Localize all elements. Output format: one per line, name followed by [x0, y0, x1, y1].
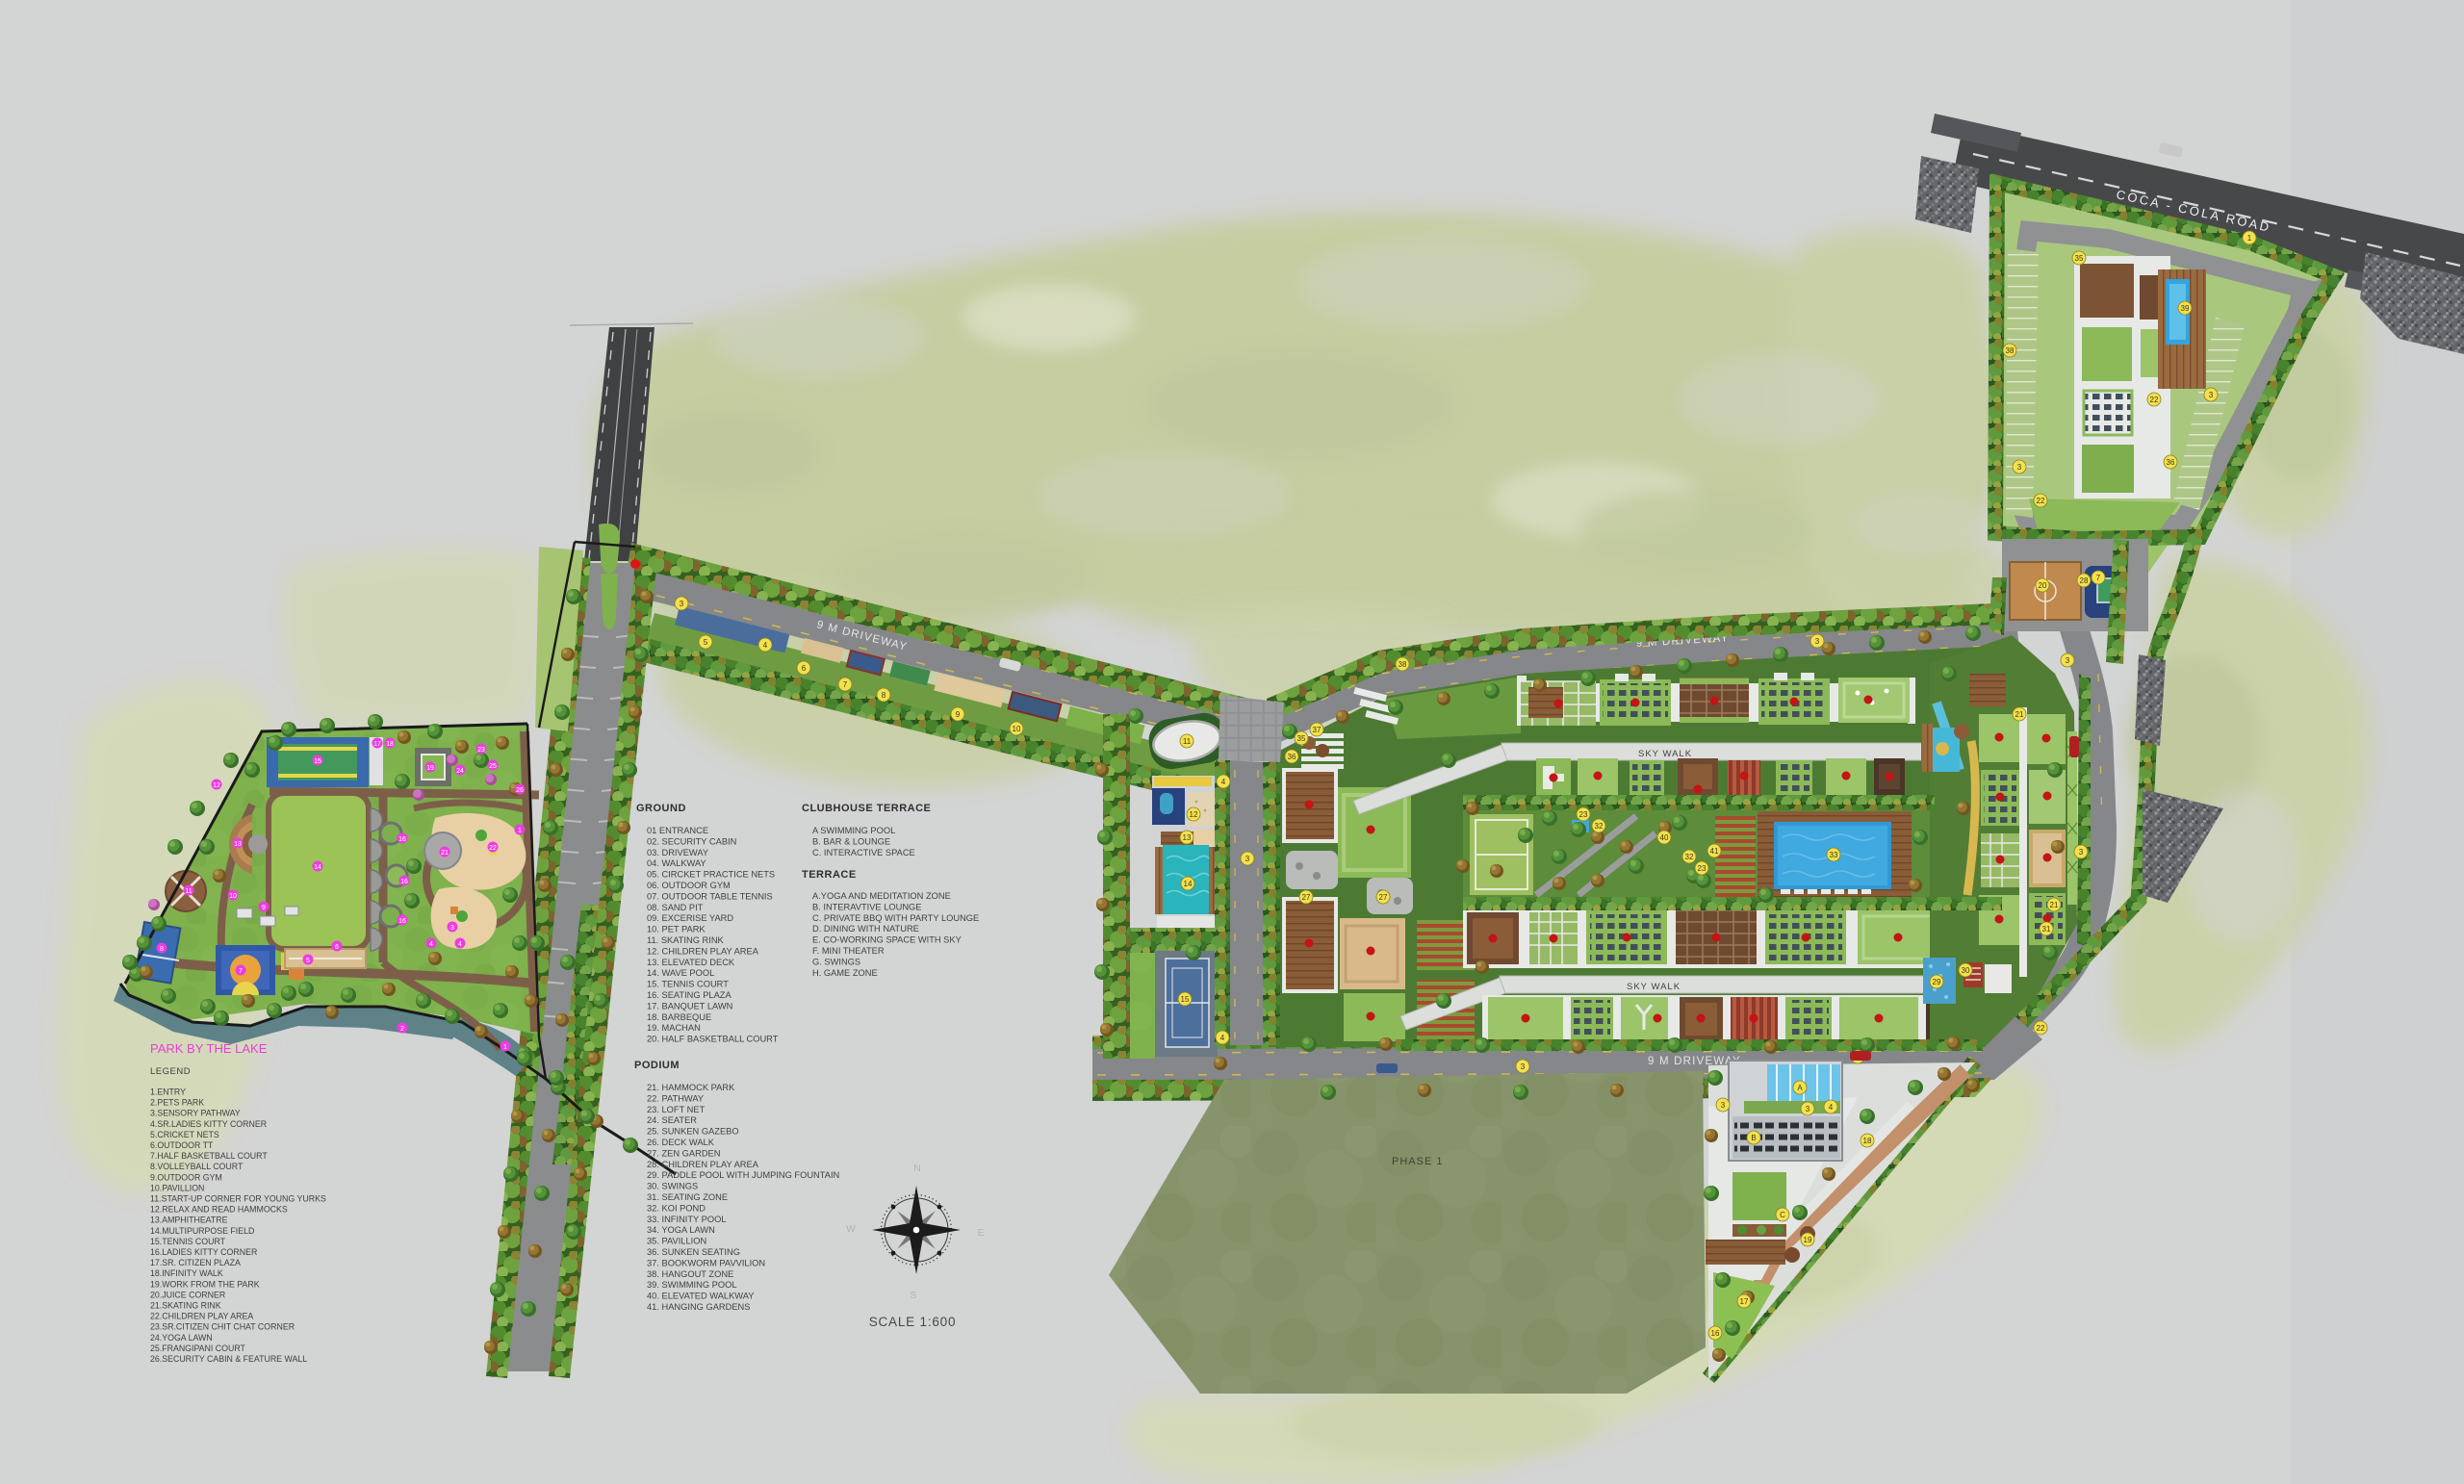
svg-text:PARK BY THE LAKE: PARK BY THE LAKE [150, 1041, 268, 1056]
svg-text:11: 11 [1183, 737, 1192, 746]
svg-text:3: 3 [2209, 391, 2214, 399]
svg-text:17.SR. CITIZEN PLAZA: 17.SR. CITIZEN PLAZA [150, 1258, 241, 1267]
svg-text:16: 16 [400, 879, 408, 885]
svg-text:31: 31 [2042, 925, 2051, 934]
svg-text:20: 20 [2039, 581, 2047, 590]
svg-text:18: 18 [386, 741, 394, 748]
svg-text:4.SR.LADIES KITTY CORNER: 4.SR.LADIES KITTY CORNER [150, 1119, 267, 1129]
svg-text:29. PADDLE POOL WITH JUMPING F: 29. PADDLE POOL WITH JUMPING FOUNTAIN [647, 1170, 839, 1180]
svg-text:10. PET PARK: 10. PET PARK [647, 925, 706, 934]
svg-text:SKY WALK: SKY WALK [1627, 982, 1681, 992]
svg-text:3: 3 [1245, 855, 1250, 863]
svg-text:19: 19 [426, 765, 434, 772]
svg-text:38. HANGOUT ZONE: 38. HANGOUT ZONE [647, 1269, 733, 1279]
svg-text:17: 17 [373, 741, 381, 748]
svg-text:8: 8 [160, 946, 164, 953]
svg-text:A.YOGA AND MEDITATION ZONE: A.YOGA AND MEDITATION ZONE [812, 891, 951, 901]
svg-text:28. CHILDREN PLAY AREA: 28. CHILDREN PLAY AREA [647, 1160, 759, 1169]
svg-text:11. SKATING RINK: 11. SKATING RINK [647, 935, 725, 945]
svg-text:15: 15 [314, 758, 321, 765]
svg-text:B. BAR & LOUNGE: B. BAR & LOUNGE [812, 836, 890, 846]
svg-text:8.VOLLEYBALL COURT: 8.VOLLEYBALL COURT [150, 1162, 244, 1171]
svg-text:W: W [846, 1223, 856, 1235]
svg-text:19: 19 [1804, 1236, 1812, 1244]
svg-text:16.LADIES KITTY CORNER: 16.LADIES KITTY CORNER [150, 1247, 257, 1257]
svg-text:23: 23 [477, 747, 485, 754]
svg-text:34. YOGA LAWN: 34. YOGA LAWN [647, 1225, 715, 1235]
svg-text:13. ELEVATED DECK: 13. ELEVATED DECK [647, 958, 735, 967]
svg-text:23.SR.CITIZEN CHIT CHAT CORNER: 23.SR.CITIZEN CHIT CHAT CORNER [150, 1322, 295, 1332]
svg-text:7: 7 [239, 968, 243, 975]
svg-text:24. SEATER: 24. SEATER [647, 1115, 697, 1125]
svg-text:21: 21 [2015, 710, 2024, 719]
svg-text:38: 38 [1399, 660, 1407, 669]
svg-text:7: 7 [2096, 574, 2101, 582]
svg-text:B. INTERAVTIVE LOUNGE: B. INTERAVTIVE LOUNGE [812, 902, 921, 911]
svg-text:35: 35 [1297, 734, 1306, 743]
svg-text:04. WALKWAY: 04. WALKWAY [647, 858, 706, 868]
svg-text:22: 22 [489, 845, 497, 852]
svg-text:15. TENNIS COURT: 15. TENNIS COURT [647, 980, 729, 989]
svg-text:9: 9 [262, 905, 266, 911]
svg-text:3: 3 [680, 600, 684, 608]
svg-text:E: E [977, 1227, 984, 1239]
svg-text:B: B [1751, 1134, 1756, 1142]
svg-text:27: 27 [1379, 893, 1388, 902]
svg-text:TERRACE: TERRACE [802, 869, 857, 881]
svg-text:21. HAMMOCK PARK: 21. HAMMOCK PARK [647, 1083, 735, 1092]
svg-text:20. HALF BASKETBALL COURT: 20. HALF BASKETBALL COURT [647, 1035, 779, 1044]
svg-text:41: 41 [1710, 847, 1719, 856]
svg-text:SKY WALK: SKY WALK [1638, 749, 1692, 759]
svg-text:3: 3 [2079, 848, 2084, 857]
svg-text:22: 22 [2037, 1024, 2045, 1033]
svg-text:14: 14 [314, 864, 321, 871]
svg-text:6: 6 [335, 944, 339, 951]
svg-text:2.PETS PARK: 2.PETS PARK [150, 1098, 204, 1108]
svg-text:1: 1 [503, 1044, 507, 1051]
svg-text:17. BANQUET LAWN: 17. BANQUET LAWN [647, 1001, 732, 1011]
svg-text:07. OUTDOOR TABLE TENNIS: 07. OUTDOOR TABLE TENNIS [647, 891, 773, 901]
svg-text:A SWIMMING POOL: A SWIMMING POOL [812, 826, 895, 835]
svg-text:08. SAND PIT: 08. SAND PIT [647, 903, 704, 912]
svg-text:28: 28 [2080, 576, 2089, 585]
svg-text:29: 29 [1933, 978, 1941, 986]
svg-text:C: C [1780, 1211, 1785, 1219]
svg-text:LEGEND: LEGEND [150, 1066, 191, 1077]
svg-text:3: 3 [1806, 1105, 1810, 1113]
svg-text:3: 3 [1721, 1101, 1726, 1110]
svg-text:03. DRIVEWAY: 03. DRIVEWAY [647, 848, 708, 857]
svg-text:26: 26 [516, 787, 524, 794]
svg-text:N: N [913, 1163, 921, 1174]
svg-text:33: 33 [1830, 851, 1838, 859]
svg-text:2: 2 [400, 1026, 404, 1033]
svg-text:36: 36 [2167, 458, 2175, 467]
svg-text:H. GAME ZONE: H. GAME ZONE [812, 968, 878, 978]
svg-text:9.OUTDOOR GYM: 9.OUTDOOR GYM [150, 1172, 222, 1182]
svg-text:15.TENNIS COURT: 15.TENNIS COURT [150, 1237, 226, 1246]
svg-text:4: 4 [458, 941, 462, 948]
svg-text:31. SEATING ZONE: 31. SEATING ZONE [647, 1192, 728, 1202]
svg-text:35. PAVILLION: 35. PAVILLION [647, 1237, 706, 1246]
svg-text:PODIUM: PODIUM [634, 1060, 680, 1071]
svg-text:26. DECK WALK: 26. DECK WALK [647, 1138, 715, 1147]
svg-text:36. SUNKEN SEATING: 36. SUNKEN SEATING [647, 1247, 740, 1257]
svg-text:C. PRIVATE BBQ WITH PARTY LOU: C. PRIVATE BBQ WITH PARTY LOUNGE [812, 913, 979, 923]
svg-text:D. DINING WITH NATURE: D. DINING WITH NATURE [812, 924, 919, 934]
svg-text:32. KOI POND: 32. KOI POND [647, 1203, 706, 1213]
svg-text:15: 15 [1181, 995, 1190, 1004]
svg-text:11.START-UP CORNER FOR YOUNG Y: 11.START-UP CORNER FOR YOUNG YURKS [150, 1194, 326, 1204]
svg-text:30. SWINGS: 30. SWINGS [647, 1182, 698, 1191]
svg-text:27: 27 [1302, 893, 1311, 902]
svg-text:4: 4 [1221, 778, 1226, 786]
svg-text:37: 37 [1313, 726, 1322, 734]
svg-text:25. SUNKEN GAZEBO: 25. SUNKEN GAZEBO [647, 1127, 739, 1137]
svg-text:33. INFINITY POOL: 33. INFINITY POOL [647, 1215, 727, 1224]
svg-text:18.INFINITY WALK: 18.INFINITY WALK [150, 1268, 223, 1278]
svg-text:E. CO-WORKING SPACE WITH SKY: E. CO-WORKING SPACE WITH SKY [812, 935, 962, 945]
svg-text:13: 13 [234, 841, 242, 848]
svg-text:11: 11 [185, 888, 192, 895]
svg-text:32: 32 [1595, 822, 1604, 831]
svg-text:5: 5 [306, 958, 310, 964]
svg-text:18: 18 [1863, 1137, 1872, 1145]
svg-text:16: 16 [398, 918, 406, 925]
svg-text:F. MINI THEATER: F. MINI THEATER [812, 946, 885, 956]
svg-text:4: 4 [429, 941, 433, 948]
svg-text:26.SECURITY CABIN & FEATURE WA: 26.SECURITY CABIN & FEATURE WALL [150, 1354, 307, 1364]
svg-text:16: 16 [398, 836, 406, 843]
svg-text:24: 24 [456, 768, 464, 775]
svg-text:3: 3 [1521, 1062, 1526, 1071]
svg-text:38: 38 [2006, 346, 2015, 355]
svg-text:17: 17 [1740, 1297, 1749, 1306]
svg-text:40. ELEVATED WALKWAY: 40. ELEVATED WALKWAY [647, 1292, 754, 1301]
svg-text:22: 22 [2150, 396, 2159, 404]
svg-text:35: 35 [2075, 254, 2084, 263]
svg-text:19. MACHAN: 19. MACHAN [647, 1023, 701, 1033]
svg-text:3: 3 [450, 925, 454, 932]
svg-text:7: 7 [843, 680, 848, 689]
svg-text:39. SWIMMING POOL: 39. SWIMMING POOL [647, 1280, 737, 1290]
svg-text:1: 1 [518, 828, 522, 834]
svg-text:14. WAVE POOL: 14. WAVE POOL [647, 968, 714, 978]
svg-text:22.CHILDREN PLAY AREA: 22.CHILDREN PLAY AREA [150, 1312, 253, 1321]
svg-text:36: 36 [1288, 753, 1296, 761]
svg-text:GROUND: GROUND [636, 803, 686, 814]
svg-text:24.YOGA LAWN: 24.YOGA LAWN [150, 1333, 213, 1343]
svg-text:37. BOOKWORM PAVVILION: 37. BOOKWORM PAVVILION [647, 1258, 765, 1267]
svg-text:06. OUTDOOR GYM: 06. OUTDOOR GYM [647, 881, 731, 890]
svg-text:16. SEATING PLAZA: 16. SEATING PLAZA [647, 990, 731, 1000]
svg-text:16: 16 [1711, 1329, 1720, 1338]
svg-text:10: 10 [229, 893, 237, 900]
svg-text:4: 4 [763, 641, 768, 650]
svg-text:A: A [1797, 1084, 1803, 1092]
svg-text:25.FRANGIPANI COURT: 25.FRANGIPANI COURT [150, 1343, 246, 1353]
svg-text:3: 3 [1815, 637, 1820, 646]
svg-text:21: 21 [2050, 901, 2059, 909]
svg-text:G. SWINGS: G. SWINGS [812, 957, 860, 966]
svg-text:23: 23 [1698, 864, 1707, 873]
svg-text:12. CHILDREN PLAY AREA: 12. CHILDREN PLAY AREA [647, 946, 759, 956]
svg-text:01 ENTRANCE: 01 ENTRANCE [647, 826, 708, 835]
svg-text:1: 1 [2247, 234, 2252, 243]
svg-text:7.HALF BASKETBALL COURT: 7.HALF BASKETBALL COURT [150, 1151, 268, 1161]
svg-text:13.AMPHITHEATRE: 13.AMPHITHEATRE [150, 1215, 228, 1225]
svg-text:12.RELAX AND READ HAMMOCKS: 12.RELAX AND READ HAMMOCKS [150, 1205, 288, 1215]
svg-text:S: S [910, 1290, 916, 1301]
svg-text:4: 4 [1220, 1034, 1225, 1042]
svg-text:8: 8 [882, 691, 886, 700]
svg-text:CLUBHOUSE TERRACE: CLUBHOUSE TERRACE [802, 803, 931, 814]
svg-text:6: 6 [802, 664, 807, 673]
svg-text:22. PATHWAY: 22. PATHWAY [647, 1093, 704, 1103]
svg-text:1.ENTRY: 1.ENTRY [150, 1087, 186, 1097]
svg-text:5: 5 [704, 638, 708, 647]
svg-text:3.SENSORY PATHWAY: 3.SENSORY PATHWAY [150, 1109, 241, 1118]
svg-text:18. BARBEQUE: 18. BARBEQUE [647, 1012, 711, 1022]
svg-text:13: 13 [1183, 833, 1192, 842]
svg-text:09. EXCERISE YARD: 09. EXCERISE YARD [647, 913, 733, 923]
svg-text:20.JUICE CORNER: 20.JUICE CORNER [150, 1290, 225, 1299]
svg-text:21: 21 [441, 850, 449, 857]
svg-text:05. CIRCKET PRACTICE NETS: 05. CIRCKET PRACTICE NETS [647, 870, 775, 880]
svg-text:9: 9 [956, 710, 961, 719]
svg-text:4: 4 [1829, 1103, 1834, 1112]
svg-text:23: 23 [1579, 810, 1588, 819]
svg-text:40: 40 [1660, 833, 1669, 842]
svg-text:25: 25 [489, 763, 497, 770]
svg-text:10: 10 [1013, 725, 1021, 733]
svg-text:PHASE 1: PHASE 1 [1392, 1156, 1443, 1167]
svg-text:30: 30 [1962, 966, 1970, 975]
svg-text:3: 3 [2066, 656, 2070, 665]
svg-text:10.PAVILLION: 10.PAVILLION [150, 1183, 204, 1192]
svg-text:02. SECURITY CABIN: 02. SECURITY CABIN [647, 836, 736, 846]
svg-text:14: 14 [1184, 880, 1193, 888]
svg-text:12: 12 [1190, 810, 1198, 819]
svg-text:6.OUTDOOR TT: 6.OUTDOOR TT [150, 1140, 214, 1150]
svg-text:32: 32 [1685, 853, 1694, 861]
svg-text:39: 39 [2181, 304, 2190, 313]
svg-text:41. HANGING GARDENS: 41. HANGING GARDENS [647, 1302, 750, 1312]
svg-text:3: 3 [2017, 463, 2022, 472]
svg-text:SCALE 1:600: SCALE 1:600 [869, 1315, 957, 1329]
svg-text:27. ZEN GARDEN: 27. ZEN GARDEN [647, 1148, 720, 1158]
svg-text:5.CRICKET NETS: 5.CRICKET NETS [150, 1130, 219, 1139]
svg-text:21.SKATING RINK: 21.SKATING RINK [150, 1301, 221, 1311]
svg-text:19.WORK FROM THE PARK: 19.WORK FROM THE PARK [150, 1279, 260, 1289]
svg-text:23. LOFT NET: 23. LOFT NET [647, 1105, 706, 1114]
svg-text:14.MULTIPURPOSE FIELD: 14.MULTIPURPOSE FIELD [150, 1226, 254, 1236]
svg-text:22: 22 [2037, 497, 2045, 505]
svg-text:12: 12 [213, 782, 220, 789]
svg-text:C. INTERACTIVE SPACE: C. INTERACTIVE SPACE [812, 848, 915, 857]
